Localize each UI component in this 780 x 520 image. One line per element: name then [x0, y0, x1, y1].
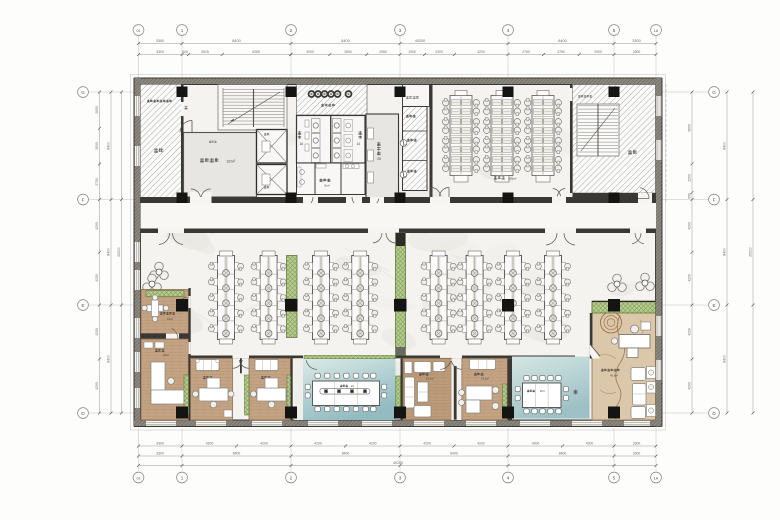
svg-text:5650: 5650 [688, 124, 692, 132]
svg-text:14: 14 [357, 142, 361, 146]
svg-text:4: 4 [507, 475, 510, 480]
svg-text:G: G [81, 90, 85, 95]
svg-text:8400: 8400 [558, 39, 566, 43]
svg-text:1900: 1900 [408, 50, 416, 54]
svg-text:25: 25 [377, 157, 381, 161]
svg-text:2615: 2615 [201, 50, 209, 54]
svg-text:E: E [712, 303, 715, 308]
svg-text:1: 1 [181, 28, 184, 33]
svg-text:45.3m²: 45.3m² [610, 374, 618, 378]
svg-text:8400: 8400 [723, 142, 727, 150]
svg-text:4200: 4200 [369, 441, 377, 445]
svg-text:8400: 8400 [342, 451, 350, 455]
svg-text:40200: 40200 [393, 461, 403, 465]
svg-text:4200: 4200 [688, 328, 692, 336]
svg-text:2: 2 [290, 28, 293, 33]
svg-text:3000: 3000 [306, 50, 314, 54]
svg-text:3300: 3300 [156, 39, 164, 43]
svg-text:3: 3 [399, 475, 402, 480]
svg-text:8400: 8400 [107, 248, 111, 256]
svg-text:19.3m²: 19.3m² [426, 378, 434, 381]
svg-text:4200: 4200 [688, 222, 692, 230]
svg-text:4200: 4200 [586, 441, 594, 445]
svg-text:F: F [713, 197, 716, 202]
svg-text:01: 01 [137, 476, 141, 480]
svg-text:E: E [81, 303, 84, 308]
svg-text:25200: 25200 [117, 247, 121, 257]
svg-text:3300: 3300 [633, 451, 641, 455]
svg-text:4200: 4200 [688, 382, 692, 390]
svg-text:4200: 4200 [260, 441, 268, 445]
svg-text:2800: 2800 [95, 142, 99, 150]
svg-text:4200: 4200 [477, 50, 485, 54]
svg-text:5285: 5285 [252, 50, 260, 54]
svg-text:2750: 2750 [95, 178, 99, 186]
svg-text:8400: 8400 [232, 39, 240, 43]
svg-text:4200: 4200 [314, 441, 322, 445]
svg-text:32m²: 32m² [227, 160, 236, 164]
svg-text:22m²: 22m² [163, 353, 169, 357]
svg-text:8400: 8400 [723, 248, 727, 256]
svg-text:G: G [712, 90, 716, 95]
svg-text:8400: 8400 [450, 451, 458, 455]
svg-text:5: 5 [613, 475, 616, 480]
svg-text:2: 2 [290, 475, 293, 480]
svg-text:4200: 4200 [477, 441, 485, 445]
svg-text:3300: 3300 [156, 451, 164, 455]
svg-text:500: 500 [688, 193, 692, 199]
svg-text:8400: 8400 [107, 142, 111, 150]
svg-text:25200: 25200 [749, 247, 753, 257]
svg-text:5m²: 5m² [324, 184, 329, 188]
svg-text:4200: 4200 [423, 441, 431, 445]
svg-text:8400: 8400 [233, 451, 241, 455]
svg-text:2300: 2300 [435, 50, 443, 54]
svg-text:29.3: 29.3 [540, 391, 545, 393]
svg-text:F: F [82, 197, 85, 202]
svg-text:4: 4 [507, 28, 510, 33]
svg-text:1A: 1A [654, 476, 659, 480]
svg-text:500: 500 [182, 50, 188, 54]
svg-text:01: 01 [137, 29, 141, 33]
svg-text:4200: 4200 [95, 382, 99, 390]
svg-text:3300: 3300 [632, 39, 640, 43]
svg-text:16: 16 [300, 142, 304, 146]
svg-text:2850: 2850 [95, 106, 99, 114]
svg-text:2550: 2550 [379, 50, 387, 54]
svg-text:1A: 1A [654, 29, 659, 33]
svg-text:2850: 2850 [344, 50, 352, 54]
svg-text:1: 1 [181, 475, 184, 480]
svg-text:3300: 3300 [156, 50, 164, 54]
svg-text:4200: 4200 [95, 328, 99, 336]
svg-text:3300: 3300 [156, 441, 164, 445]
svg-text:2250: 2250 [688, 174, 692, 182]
svg-text:8400: 8400 [341, 39, 349, 43]
svg-text:3300: 3300 [633, 441, 641, 445]
svg-text:8400: 8400 [723, 355, 727, 363]
svg-text:3300: 3300 [633, 50, 641, 54]
svg-text:4200: 4200 [95, 222, 99, 230]
svg-text:106m²: 106m² [508, 177, 517, 181]
svg-text:4200: 4200 [688, 274, 692, 282]
svg-text:3: 3 [399, 28, 402, 33]
svg-text:19.3m²: 19.3m² [481, 378, 489, 381]
svg-text:2900: 2900 [594, 50, 602, 54]
svg-text:8400: 8400 [107, 355, 111, 363]
svg-text:8400: 8400 [559, 451, 567, 455]
svg-text:5: 5 [613, 28, 616, 33]
svg-text:2750: 2750 [557, 50, 565, 54]
svg-text:4200: 4200 [95, 274, 99, 282]
svg-text:10m²: 10m² [167, 317, 173, 321]
svg-text:40200: 40200 [415, 39, 426, 43]
svg-text:4200: 4200 [532, 441, 540, 445]
svg-text:2750: 2750 [522, 50, 530, 54]
svg-text:4200: 4200 [206, 441, 214, 445]
